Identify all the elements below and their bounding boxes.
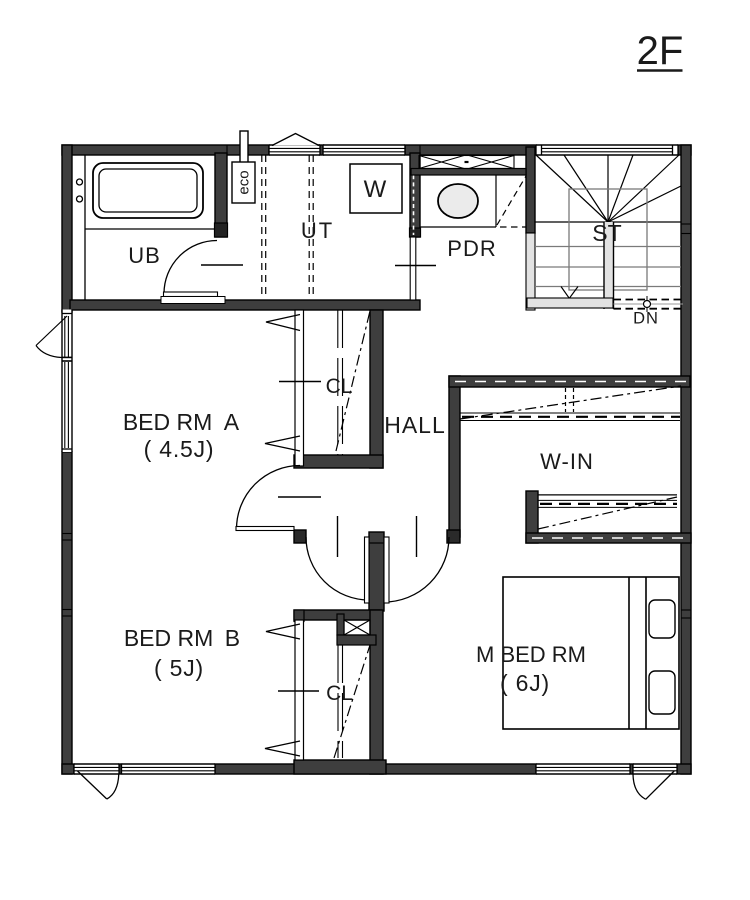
svg-text:HALL: HALL xyxy=(384,412,446,438)
svg-text:eco: eco xyxy=(236,170,253,194)
svg-text:W: W xyxy=(364,176,387,203)
svg-text:W-IN: W-IN xyxy=(540,449,594,474)
svg-text:PDR: PDR xyxy=(447,236,496,261)
svg-text:2F: 2F xyxy=(637,29,684,73)
svg-text:( 6J): ( 6J) xyxy=(500,670,550,696)
svg-text:CL: CL xyxy=(326,375,353,398)
svg-text:UB: UB xyxy=(128,243,161,268)
svg-text:( 4.5J): ( 4.5J) xyxy=(144,436,215,462)
svg-text:UT: UT xyxy=(301,218,334,243)
svg-text:BED RM B: BED RM B xyxy=(124,625,240,651)
svg-text:BED RM A: BED RM A xyxy=(123,409,240,435)
svg-text:M BED RM: M BED RM xyxy=(476,642,586,667)
svg-text:( 5J): ( 5J) xyxy=(154,655,204,681)
svg-text:ST: ST xyxy=(592,220,621,246)
svg-text:CL: CL xyxy=(326,682,353,705)
svg-text:DN: DN xyxy=(633,310,659,328)
